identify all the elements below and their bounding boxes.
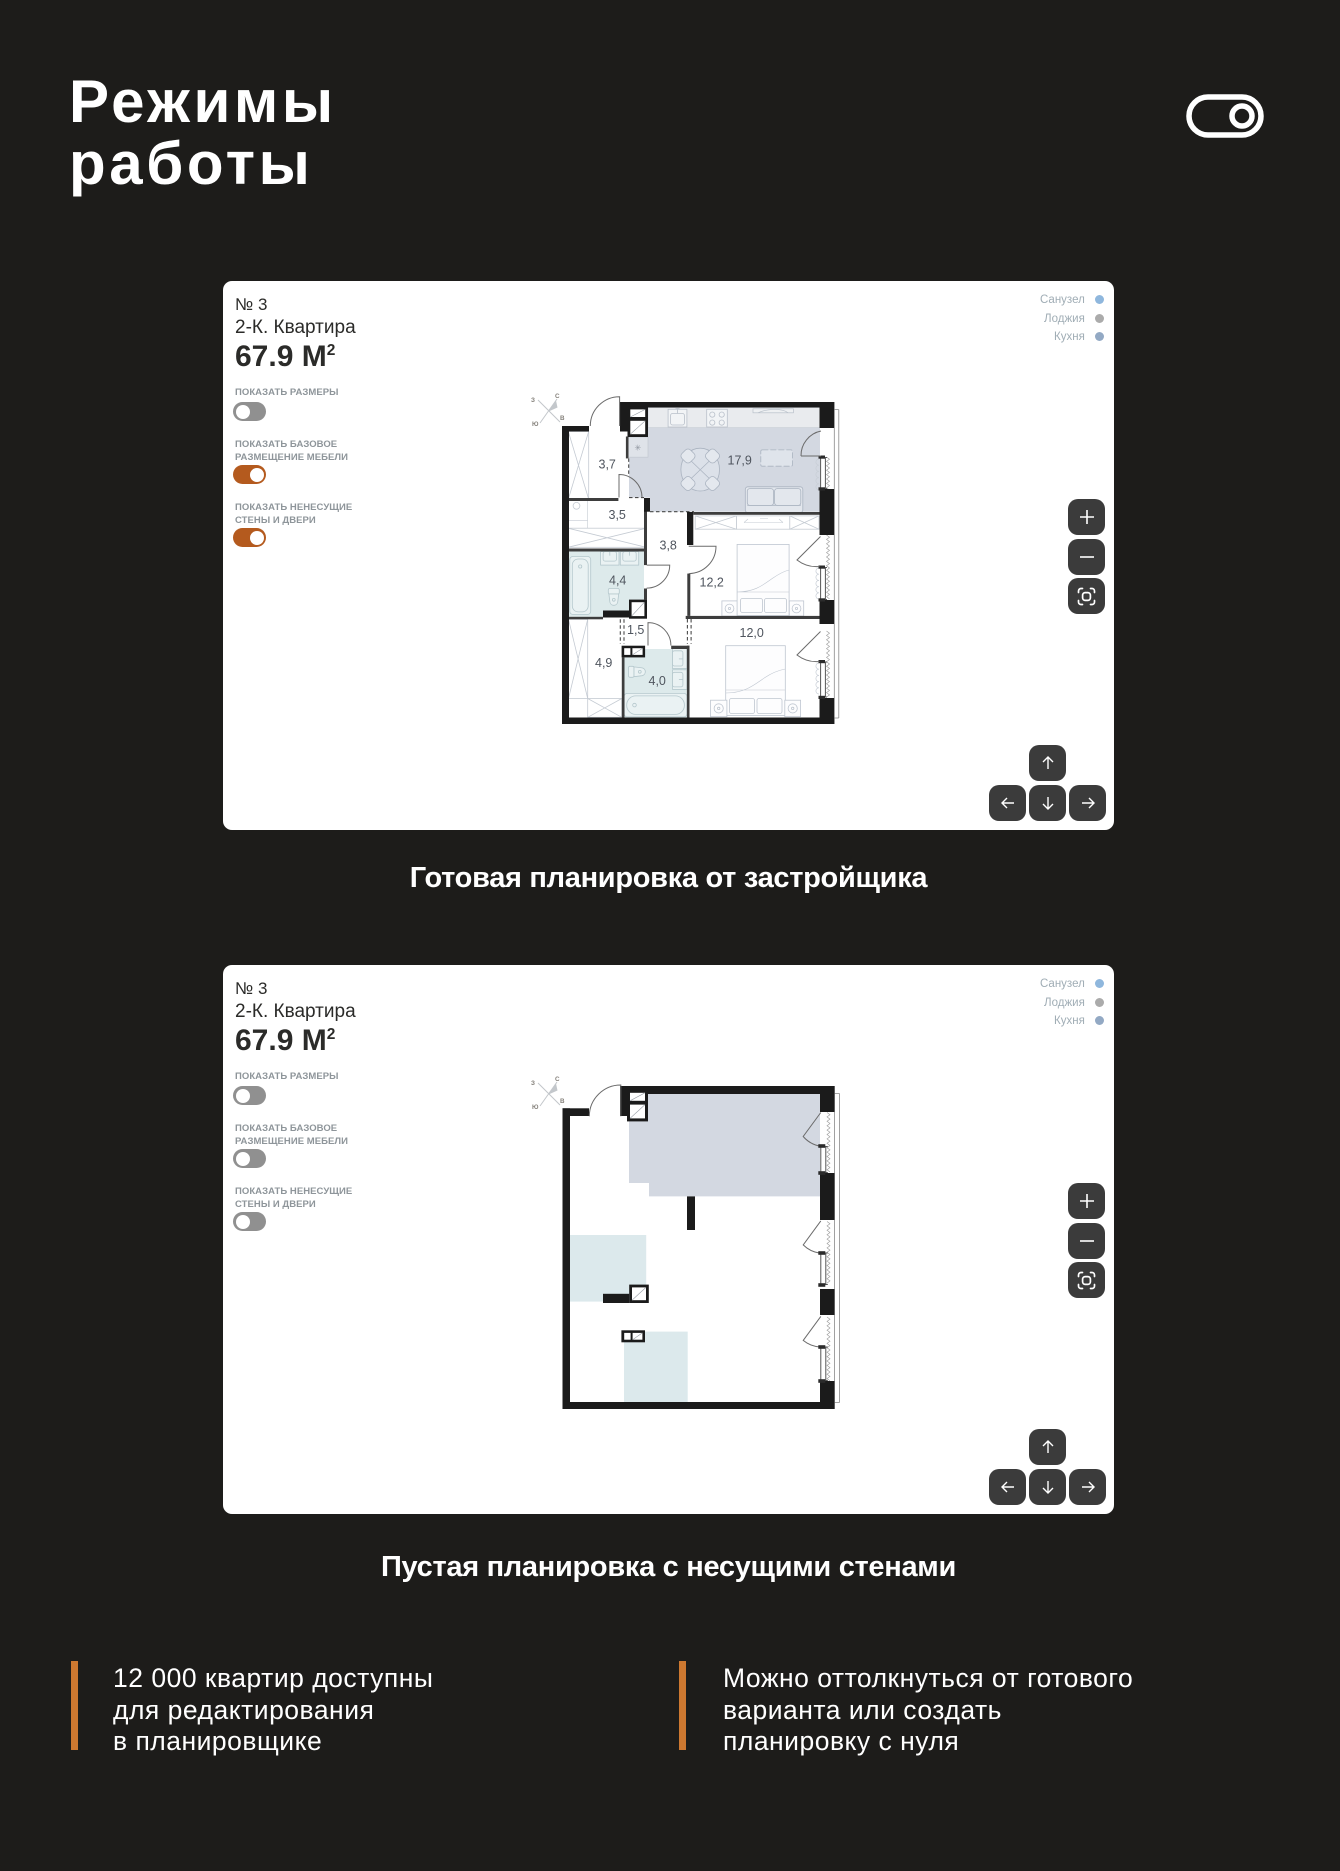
svg-text:Ю: Ю (532, 421, 539, 428)
svg-text:12,2: 12,2 (700, 576, 724, 590)
svg-text:4,4: 4,4 (609, 574, 626, 588)
svg-text:В: В (560, 415, 565, 422)
svg-text:4,9: 4,9 (595, 656, 612, 670)
svg-text:З: З (531, 397, 535, 404)
svg-text:С: С (555, 393, 560, 400)
svg-text:17,9: 17,9 (728, 454, 752, 468)
svg-text:Ю: Ю (532, 1104, 539, 1111)
svg-text:С: С (555, 1076, 560, 1083)
svg-text:4,0: 4,0 (649, 674, 666, 688)
svg-text:3,7: 3,7 (599, 458, 616, 472)
svg-text:1,5: 1,5 (627, 623, 644, 637)
svg-text:✳: ✳ (635, 444, 642, 453)
svg-text:3,8: 3,8 (660, 539, 677, 553)
svg-text:12,0: 12,0 (740, 626, 764, 640)
svg-text:З: З (531, 1080, 535, 1087)
svg-text:В: В (560, 1098, 565, 1105)
svg-text:3,5: 3,5 (609, 508, 626, 522)
